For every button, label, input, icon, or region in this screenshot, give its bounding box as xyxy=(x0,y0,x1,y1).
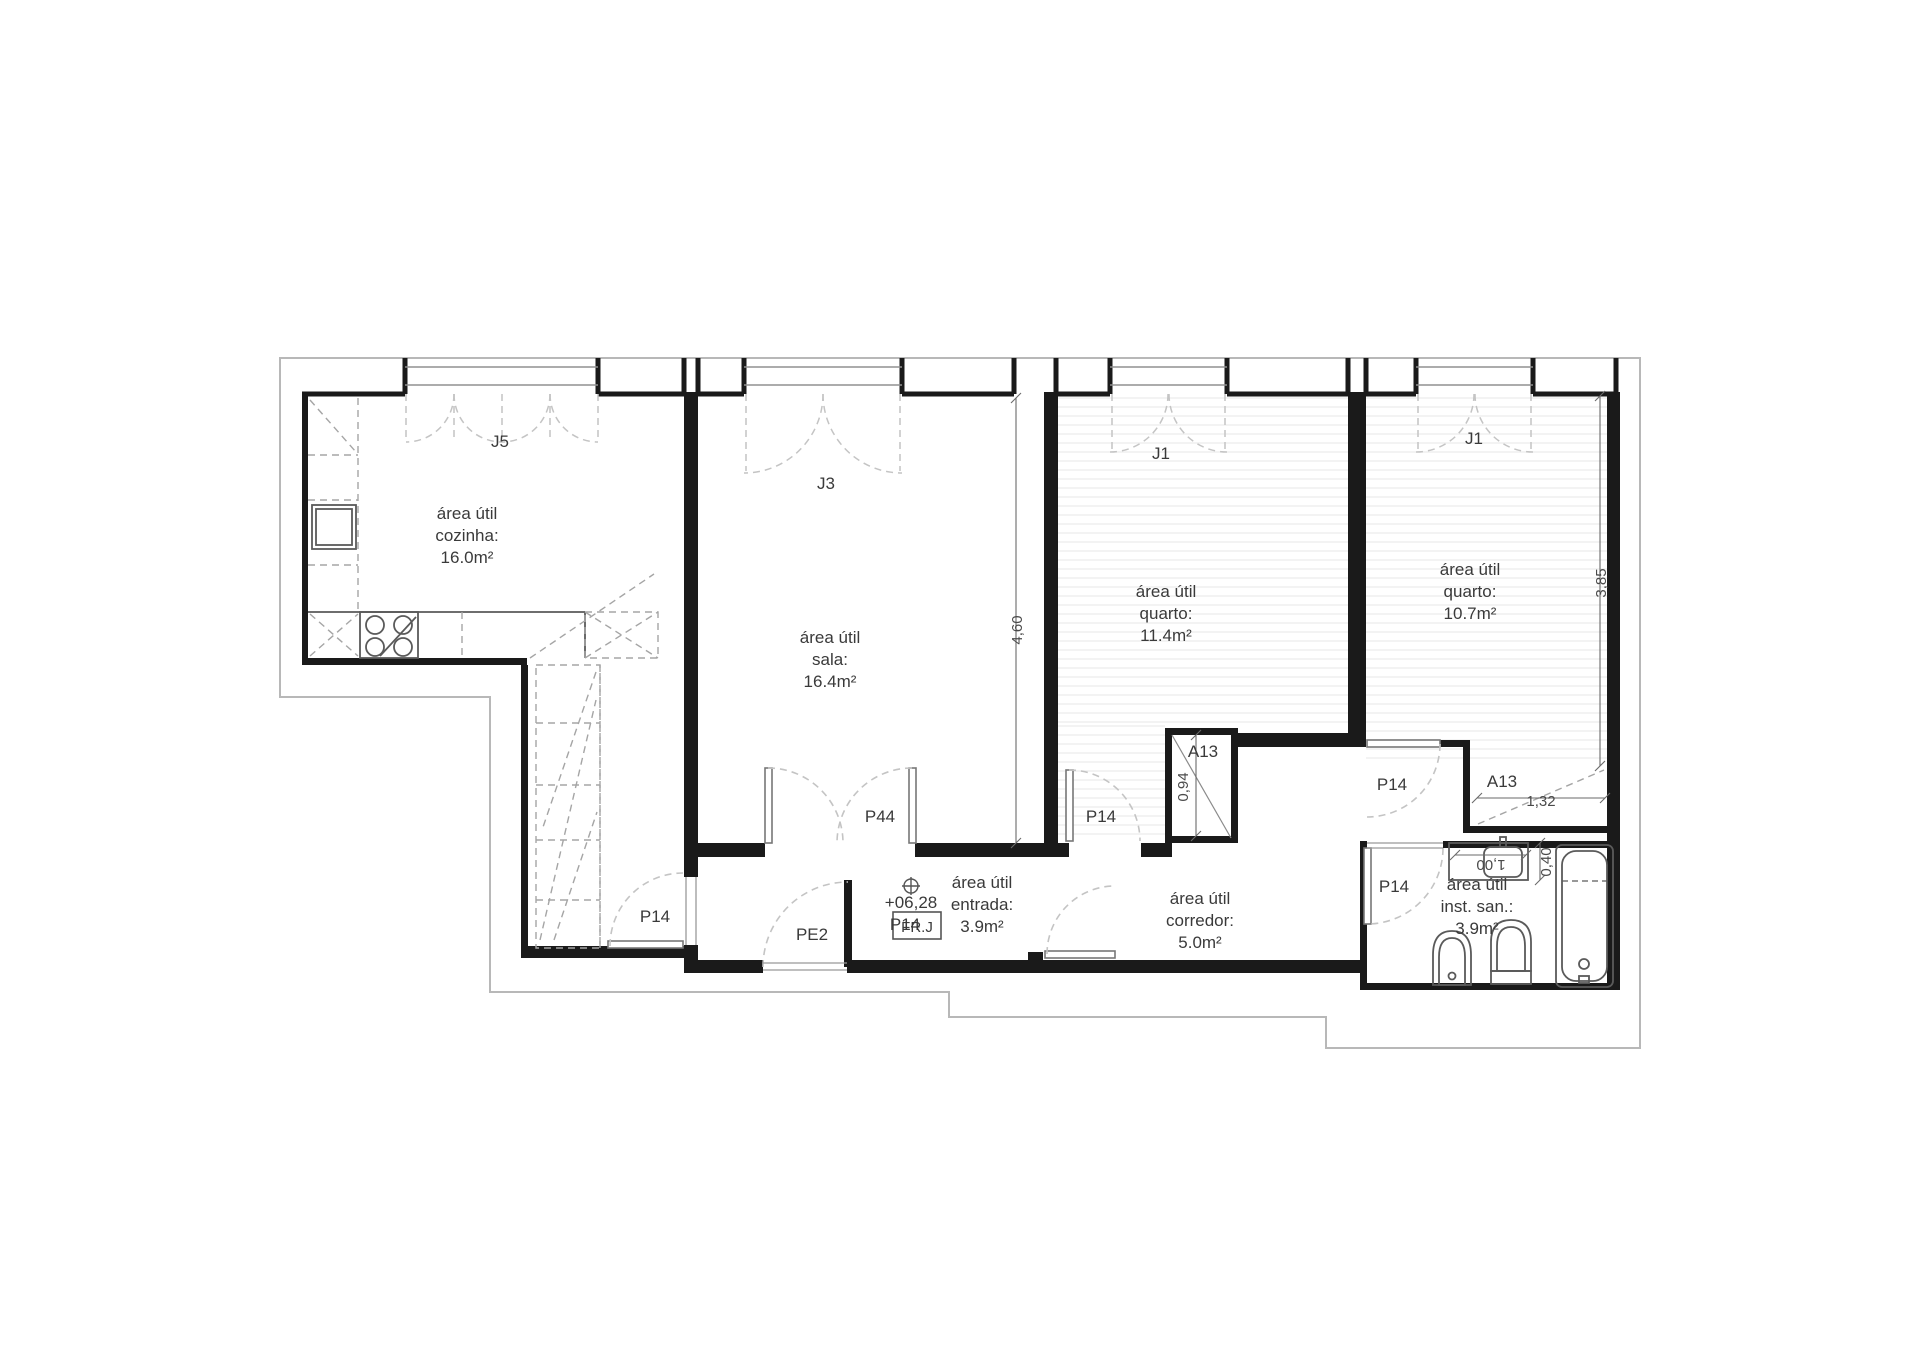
dimension-label-5: 0,40 xyxy=(1538,847,1555,876)
room-label-cozinha-line0: área útil xyxy=(437,504,497,523)
room-label-quarto-1-line0: área útil xyxy=(1136,582,1196,601)
dimension-label-2: 0,94 xyxy=(1175,772,1192,801)
door-tag-p44-5: P44 xyxy=(865,807,895,826)
room-label-corredor-line1: corredor: xyxy=(1166,911,1234,930)
room-label-corredor-line0: área útil xyxy=(1170,889,1230,908)
window-tag-j5-0: J5 xyxy=(491,432,509,451)
room-label-entrada-line1: entrada: xyxy=(951,895,1013,914)
room-label-quarto-2-line1: quarto: xyxy=(1444,582,1497,601)
dimension-label-3: 1,32 xyxy=(1526,793,1555,810)
labels-layer: área útilcozinha:16.0m²área útilsala:16.… xyxy=(435,429,1610,952)
room-label-entrada-line0: área útil xyxy=(952,873,1012,892)
door-tag-p14-4: P14 xyxy=(1379,877,1409,896)
door-tag-p14-0: P14 xyxy=(640,907,670,926)
room-label-quarto-2-line0: área útil xyxy=(1440,560,1500,579)
room-label-quarto-1-line2: 11.4m² xyxy=(1140,626,1192,645)
room-label-entrada-line2: 3.9m² xyxy=(960,917,1004,936)
closet-tag-a13-0: A13 xyxy=(1188,742,1218,761)
door-tag-p14-3: P14 xyxy=(1377,775,1407,794)
room-label-sala-line2: 16.4m² xyxy=(804,672,857,691)
room-label-cozinha-line1: cozinha: xyxy=(435,526,498,545)
floor-plan-canvas: área útilcozinha:16.0m²área útilsala:16.… xyxy=(0,0,1920,1365)
closet-tag-a13-1: A13 xyxy=(1487,772,1517,791)
room-label-inst-san-line0: área útil xyxy=(1447,875,1507,894)
dimension-label-4: 1,00 xyxy=(1476,856,1505,873)
window-tag-j1-3: J1 xyxy=(1465,429,1483,448)
room-label-sala-line1: sala: xyxy=(812,650,848,669)
room-label-quarto-1-line1: quarto: xyxy=(1140,604,1193,623)
door-tag-p14-2: P14 xyxy=(1086,807,1116,826)
level-marker-label: +06,28 xyxy=(885,893,937,912)
room-label-quarto-2-line2: 10.7m² xyxy=(1444,604,1497,623)
room-label-inst-san-line2: 3.9m² xyxy=(1455,919,1499,938)
dimension-label-0: 4,60 xyxy=(1009,615,1026,644)
room-label-cozinha-line2: 16.0m² xyxy=(441,548,494,567)
floor-plan-svg: área útilcozinha:16.0m²área útilsala:16.… xyxy=(0,0,1920,1365)
window-tag-j1-2: J1 xyxy=(1152,444,1170,463)
room-label-corredor-line2: 5.0m² xyxy=(1178,933,1222,952)
door-tag-pe2-6: PE2 xyxy=(796,925,828,944)
dimension-label-1: 3,85 xyxy=(1593,568,1610,597)
room-label-inst-san-line1: inst. san.: xyxy=(1441,897,1514,916)
window-tag-j3-1: J3 xyxy=(817,474,835,493)
room-label-sala-line0: área útil xyxy=(800,628,860,647)
fridge-box-label: FR.J xyxy=(901,919,933,936)
